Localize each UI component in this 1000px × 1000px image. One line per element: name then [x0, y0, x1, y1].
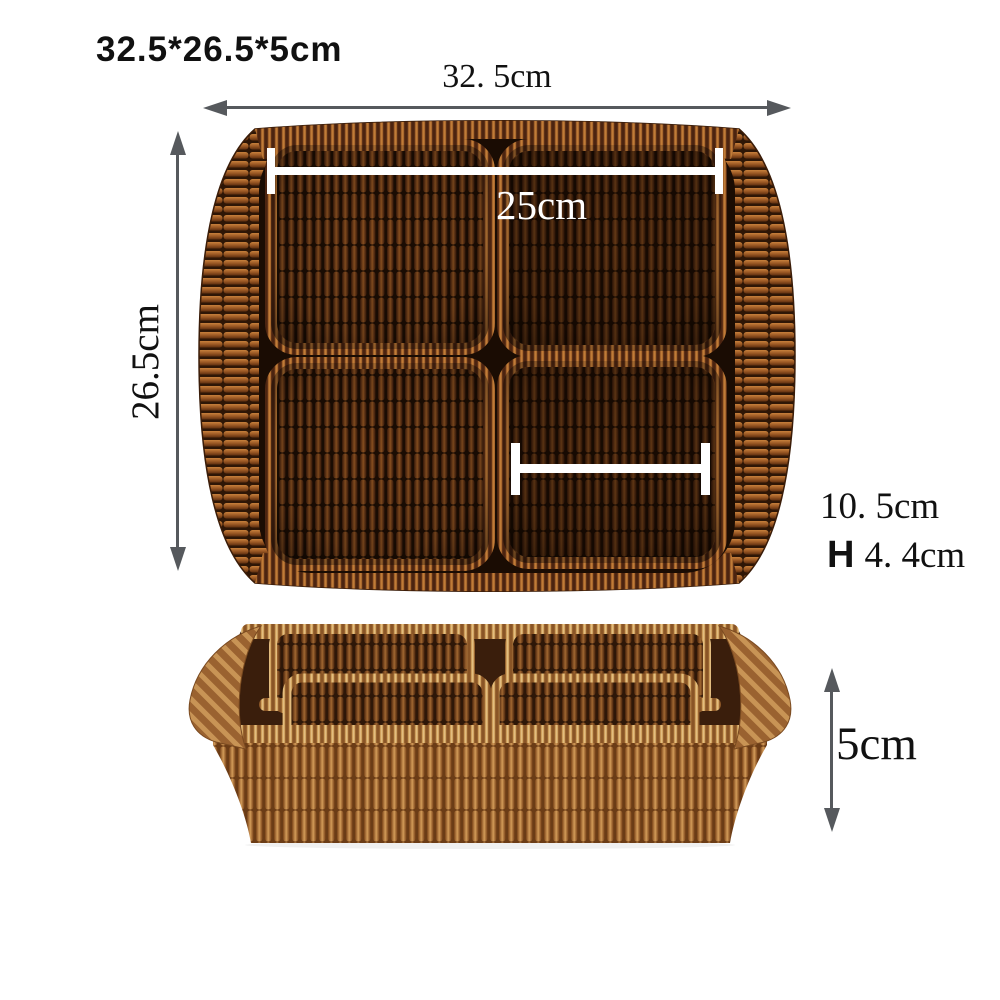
arrow-line — [830, 684, 833, 816]
compartment-width-line — [511, 464, 710, 473]
outer-width-arrow — [203, 100, 791, 116]
inner-width-label: 25cm — [496, 181, 587, 229]
outer-width-label: 32. 5cm — [203, 58, 791, 96]
compartment-height-row: H 4. 4cm — [827, 534, 965, 577]
outer-depth-arrow — [170, 131, 186, 571]
tray-height-label: 5cm — [836, 717, 917, 771]
outer-depth-label: 26.5cm — [123, 272, 167, 452]
left-tick — [511, 443, 520, 495]
arrow-line — [176, 147, 179, 555]
right-tick — [715, 148, 723, 194]
left-tick — [267, 148, 275, 194]
arrow-line — [219, 106, 775, 109]
side-view-basket-photo — [183, 618, 798, 850]
product-dimension-diagram: { "title": "32.5*26.5*5cm", "dimensions"… — [0, 0, 1000, 1000]
compartment-width-label: 10. 5cm — [820, 485, 939, 528]
arrow-down-head — [170, 547, 186, 571]
arrow-down-head — [824, 808, 840, 832]
inner-width-line — [267, 167, 723, 175]
right-tick — [701, 443, 710, 495]
compartment-height-label: 4. 4cm — [864, 534, 965, 577]
height-prefix-label: H — [827, 534, 854, 577]
arrow-right-head — [767, 100, 791, 116]
